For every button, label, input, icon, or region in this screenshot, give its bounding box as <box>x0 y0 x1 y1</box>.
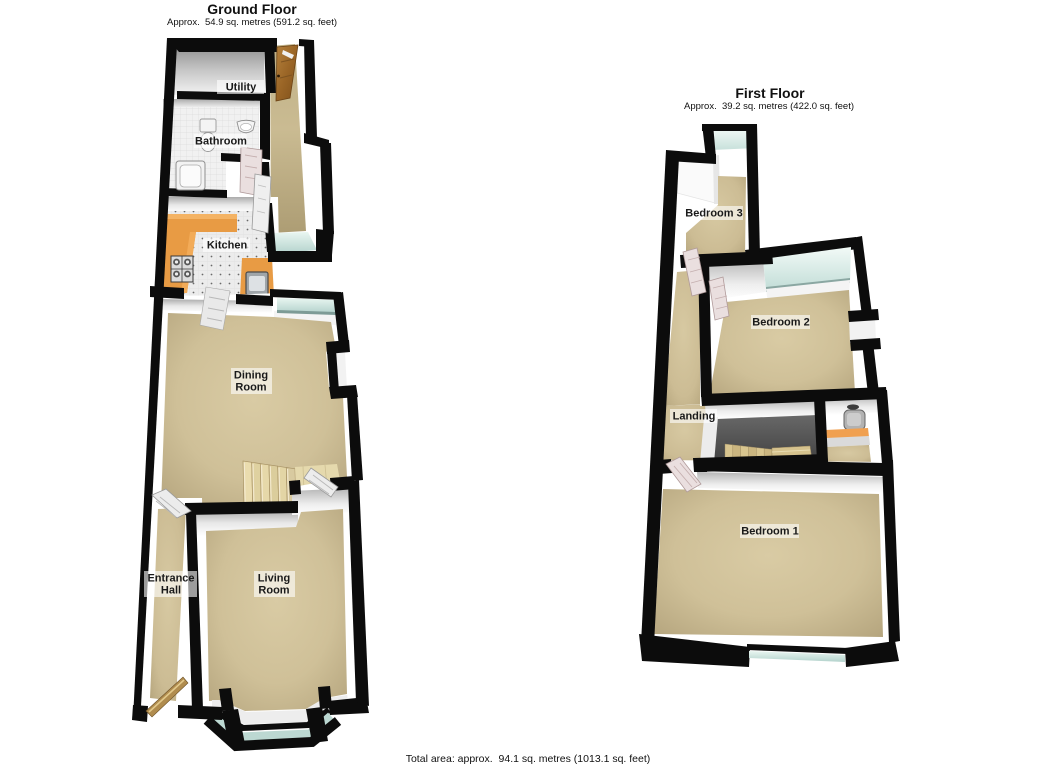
svg-text:Approx. 39.2 sq. metres (422.: Approx. 39.2 sq. metres (422.0 sq. feet) <box>684 101 854 112</box>
svg-text:Living: Living <box>258 573 290 585</box>
svg-text:Dining: Dining <box>234 370 268 382</box>
svg-text:Ground Floor: Ground Floor <box>207 1 297 17</box>
svg-text:Utility: Utility <box>226 82 257 94</box>
svg-text:Entrance: Entrance <box>147 573 194 585</box>
svg-text:Bathroom: Bathroom <box>195 136 247 148</box>
svg-text:First Floor: First Floor <box>735 85 805 101</box>
svg-text:Room: Room <box>235 382 266 394</box>
svg-text:Landing: Landing <box>673 411 716 423</box>
svg-text:Bedroom 3: Bedroom 3 <box>685 208 742 220</box>
svg-text:Kitchen: Kitchen <box>207 240 248 252</box>
svg-text:Room: Room <box>258 585 289 597</box>
svg-text:Bedroom 1: Bedroom 1 <box>741 526 798 538</box>
svg-text:Approx. 54.9 sq. metres (591.: Approx. 54.9 sq. metres (591.2 sq. feet) <box>167 17 337 28</box>
svg-text:Bedroom 2: Bedroom 2 <box>752 317 809 329</box>
svg-text:Hall: Hall <box>161 585 181 597</box>
svg-text:Total area: approx. 94.1 sq.: Total area: approx. 94.1 sq. metres (101… <box>406 753 651 765</box>
